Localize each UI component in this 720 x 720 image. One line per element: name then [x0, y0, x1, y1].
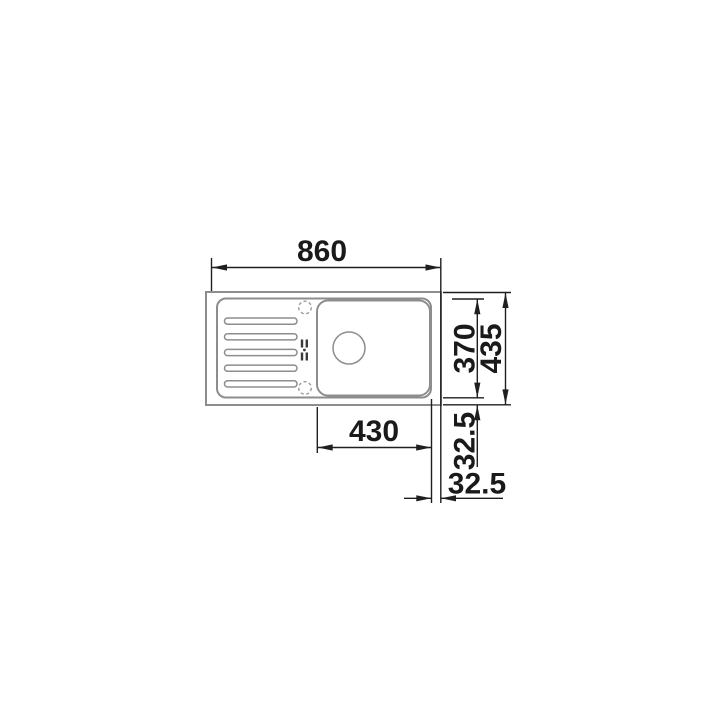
arrowhead-up: [502, 293, 508, 308]
arrowhead-right: [416, 495, 431, 501]
drainboard-grooves: [225, 318, 298, 387]
bowl-outline: [317, 301, 430, 396]
dim-label-depth-offset: 32.5: [449, 412, 482, 470]
clip-bar: [301, 340, 303, 348]
dim-bowl-width: 430: [317, 399, 431, 503]
technical-drawing-canvas: 860 435 370: [0, 0, 720, 720]
dim-rim-depth: 370: [443, 299, 484, 398]
arrowhead-left: [212, 264, 227, 270]
drainboard-groove: [225, 349, 298, 355]
dim-width-offset: 32.5: [404, 468, 506, 502]
dim-depth-offset: 32.5: [449, 405, 482, 470]
arrowhead-down: [474, 383, 480, 398]
dim-label-width-offset: 32.5: [448, 468, 506, 501]
drainboard-groove: [225, 381, 298, 387]
sink-plan-view: [206, 292, 441, 405]
drainboard-groove: [225, 334, 298, 340]
arrowhead-right: [416, 444, 431, 450]
clip-bar: [306, 353, 308, 361]
arrowhead-up: [474, 299, 480, 314]
tap-hole-icon-bottom: [299, 382, 312, 395]
drain-hole-icon: [333, 332, 365, 364]
sink-dimension-diagram: 860 435 370: [0, 0, 720, 720]
dim-label-bowl-width: 430: [349, 415, 399, 448]
dimension-annotations: 860 435 370: [212, 235, 512, 503]
dim-overall-width: 860: [212, 235, 441, 503]
arrowhead-right: [426, 264, 441, 270]
drainboard-groove: [225, 318, 298, 324]
sink-rim: [217, 299, 431, 398]
clip-dot: [303, 349, 306, 352]
drainboard-groove: [225, 365, 298, 371]
dim-label-overall-width: 860: [297, 235, 347, 268]
clip-bar: [306, 340, 308, 348]
arrowhead-down: [502, 389, 508, 404]
mounting-clip-icon: [301, 340, 308, 361]
clip-bar: [301, 353, 303, 361]
tap-hole-icon-top: [299, 301, 312, 314]
dim-label-rim-depth: 370: [449, 323, 482, 373]
sink-outer-edge: [206, 292, 441, 405]
arrowhead-left: [318, 444, 333, 450]
